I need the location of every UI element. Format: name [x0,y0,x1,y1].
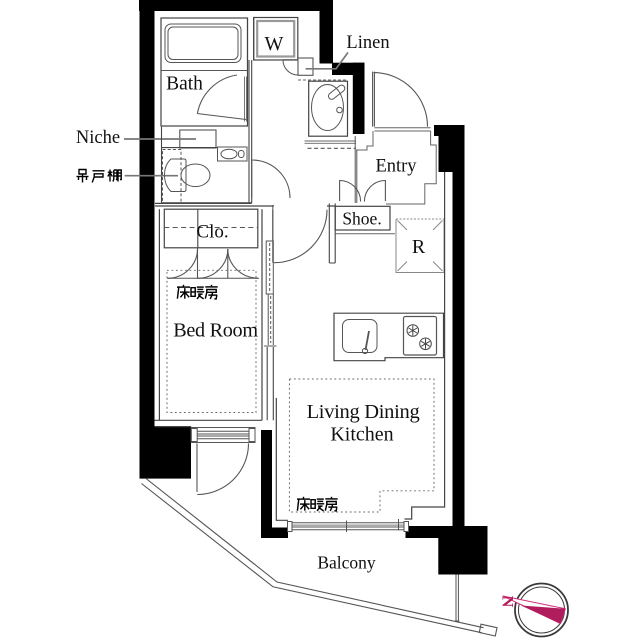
svg-text:Linen: Linen [346,33,389,53]
svg-text:Living Dining: Living Dining [307,401,420,423]
svg-text:Balcony: Balcony [317,553,376,573]
svg-text:Kitchen: Kitchen [330,424,393,446]
svg-text:N: N [498,596,515,608]
svg-text:Niche: Niche [76,128,120,148]
svg-text:Entry: Entry [375,157,417,177]
svg-text:Bed Room: Bed Room [173,320,258,342]
svg-text:Shoe.: Shoe. [342,209,381,229]
svg-text:Clo.: Clo. [196,222,228,243]
svg-text:W: W [265,33,284,55]
svg-text:R: R [412,236,426,258]
svg-text:Bath: Bath [166,74,203,95]
